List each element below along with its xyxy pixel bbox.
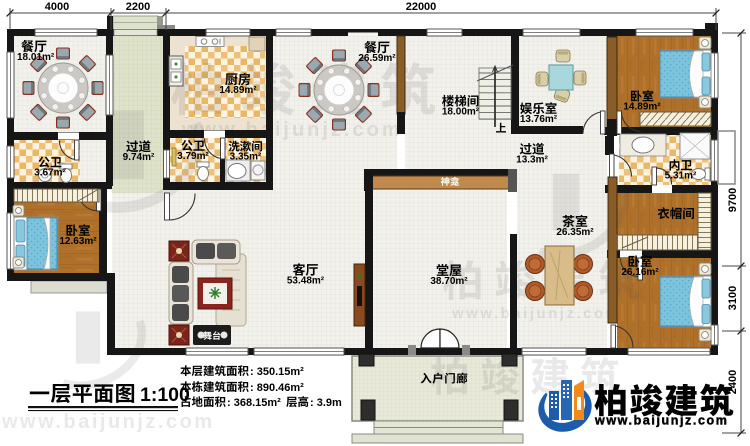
svg-text:3100: 3100: [727, 286, 739, 310]
svg-text:: 368.15m²: : 368.15m²: [227, 397, 281, 409]
svg-text:9.74m²: 9.74m²: [123, 152, 155, 163]
svg-text:www.baijunjz.com: www.baijunjz.com: [451, 305, 621, 322]
svg-text:www.baijunjz.com: www.baijunjz.com: [1, 411, 215, 433]
svg-text:12.63m²: 12.63m²: [59, 236, 97, 247]
svg-text:: 3.9m: : 3.9m: [310, 397, 342, 409]
svg-text:2200: 2200: [126, 1, 150, 13]
svg-text:26.35m²: 26.35m²: [556, 227, 594, 238]
svg-text:18.01m²: 18.01m²: [17, 52, 55, 63]
svg-text:3.67m²: 3.67m²: [34, 168, 66, 179]
svg-text:3.79m²: 3.79m²: [177, 151, 209, 162]
svg-text:3.35m²: 3.35m²: [230, 152, 262, 163]
svg-text:9700: 9700: [727, 188, 739, 212]
svg-text:14.89m²: 14.89m²: [623, 102, 661, 113]
svg-text:: 350.15m²: : 350.15m²: [250, 366, 304, 378]
svg-text:26.16m²: 26.16m²: [621, 267, 659, 278]
svg-text:38.70m²: 38.70m²: [430, 276, 468, 287]
svg-text:14.89m²: 14.89m²: [219, 85, 257, 96]
svg-text:4000: 4000: [45, 1, 69, 13]
svg-text:53.48m²: 53.48m²: [287, 276, 325, 287]
svg-text:13.3m²: 13.3m²: [516, 155, 548, 166]
svg-text:www.baijunjz.com: www.baijunjz.com: [594, 414, 728, 428]
svg-text:13.76m²: 13.76m²: [520, 114, 558, 125]
svg-text:22000: 22000: [406, 1, 437, 13]
svg-text:26.59m²: 26.59m²: [358, 53, 396, 64]
svg-text:18.00m²: 18.00m²: [442, 107, 480, 118]
svg-text:: 890.46m²: : 890.46m²: [250, 382, 304, 394]
svg-text:5.31m²: 5.31m²: [665, 171, 697, 182]
